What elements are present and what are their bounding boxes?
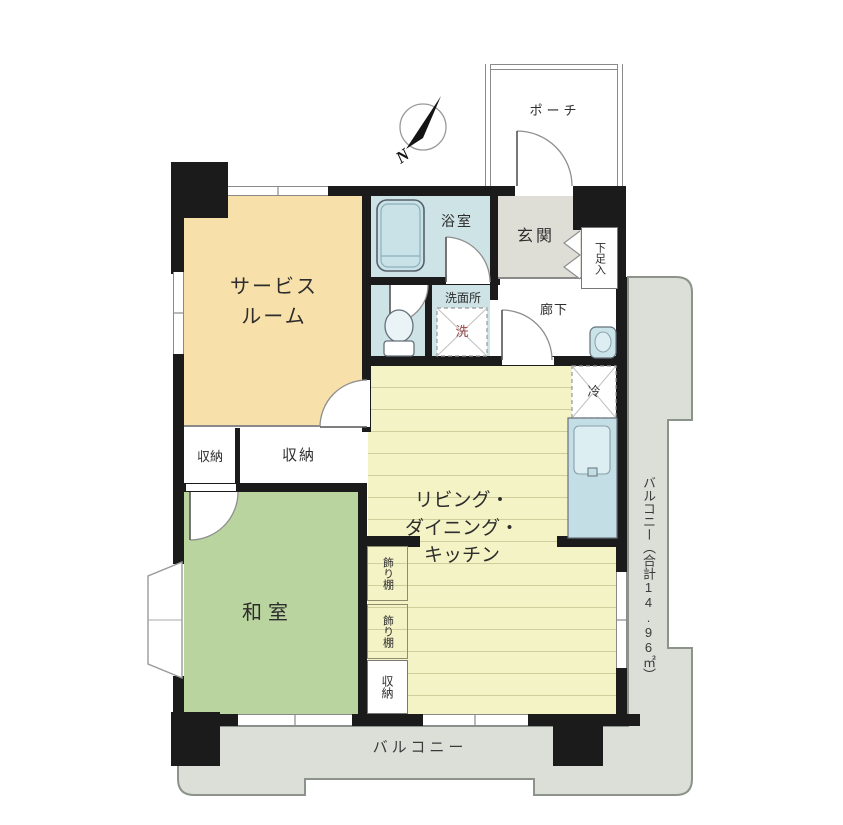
window-service-left [173,272,184,354]
bathroom-floor [371,196,490,277]
balcony-right-label: バルコニー（合計14.96㎡） [632,432,658,724]
entrance-label: 玄関 [500,222,572,246]
north-arrow [406,96,441,149]
storage-sliding-line [184,425,362,427]
wall-washroom-hall [490,196,498,300]
window-ldk-bottom [423,714,528,726]
wall-ldk-top [368,356,620,366]
door-gap-hallway-ldk [502,357,554,365]
storage-left-label: 収納 [184,446,236,465]
shoe-cabinet-box: 下足入 [581,227,618,289]
floor-plan: 下足入 飾り棚 飾り棚 収納 [0,0,843,825]
window-service-top [228,186,328,196]
door-gap-service [363,380,370,427]
storage-right-label: 収納 [248,444,350,465]
service-room-label-line2: ルーム [195,302,353,332]
door-gap-washitsu [186,484,236,491]
porch-rail-left [485,64,491,188]
north-label: N [391,144,413,168]
shoe-cabinet-label: 下足入 [592,242,608,275]
porch-rail-top [485,64,623,70]
north-compass: N [391,96,446,168]
hallway-label: 廊下 [528,299,580,318]
ldk-label-line1: リビング・ [372,487,552,515]
storage-ldk-label: 収納 [379,675,396,699]
wall-stub-right [557,536,627,547]
bathroom-label: 浴室 [427,211,487,231]
porch-floor [491,66,618,188]
ldk-label-line2: ダイニング・ [372,515,552,543]
service-room-label: サービス ルーム [195,272,353,332]
window-ldk-right [616,572,627,668]
pillar-bottom-right [553,714,603,766]
washroom-label: 洗面所 [434,289,492,306]
porch-rail-right [617,64,623,188]
pillar-bottom-left [171,712,220,766]
toilet-floor [371,285,425,356]
ldk-label-line3: キッチン [372,542,552,570]
wall-toilet-washroom [425,284,432,364]
japanese-room-label: 和室 [218,596,318,625]
window-washitsu-bottom [238,714,352,726]
ldk-label: リビング・ ダイニング・ キッチン [372,487,552,570]
storage-ldk-box: 収納 [367,660,408,714]
refrigerator-label: 冷 [582,381,606,400]
porch-label: ポーチ [505,100,605,119]
hallway-floor [498,278,615,364]
shelf-lower-label: 飾り棚 [380,615,396,648]
service-room-label-line1: サービス [195,272,353,302]
bay-window-opening [173,564,184,676]
washing-machine-label: 洗 [449,321,475,340]
wall-washitsu-right [358,483,367,726]
door-gap-entry [515,186,573,196]
shelf-lower-box: 飾り棚 [367,604,408,659]
door-gap-bathroom [446,278,490,284]
balcony-bottom-label: バルコニー [345,736,495,757]
